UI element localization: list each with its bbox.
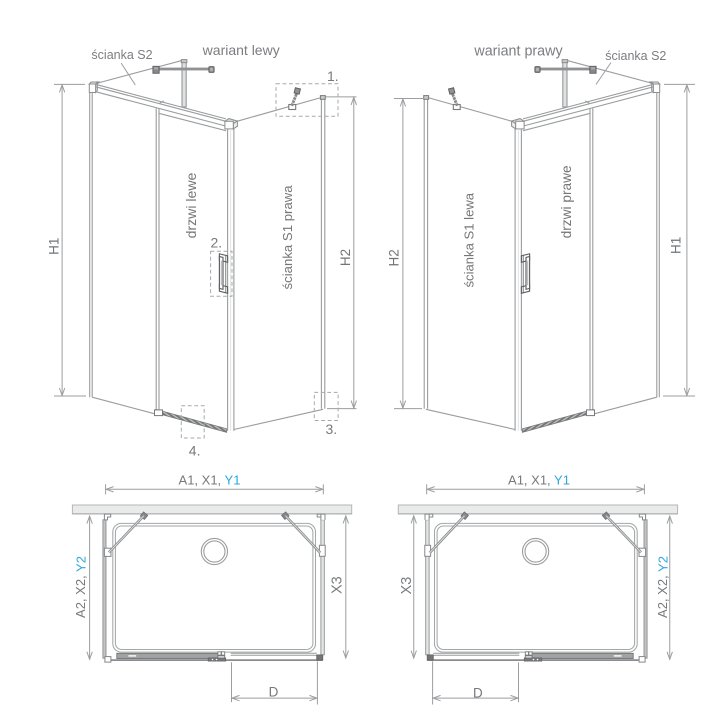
svg-text:ścianka S2: ścianka S2 — [605, 49, 666, 63]
svg-text:wariant lewy: wariant lewy — [202, 42, 280, 58]
svg-text:A2, X2, Y2: A2, X2, Y2 — [655, 556, 670, 618]
svg-text:H1: H1 — [47, 238, 62, 255]
svg-text:ścianka S1 lewa: ścianka S1 lewa — [461, 192, 476, 287]
svg-text:D: D — [269, 685, 279, 700]
svg-text:drzwi prawe: drzwi prawe — [559, 165, 574, 238]
svg-text:2.: 2. — [211, 235, 223, 251]
svg-text:1.: 1. — [327, 68, 339, 84]
svg-text:A1, X1, Y1: A1, X1, Y1 — [508, 473, 570, 488]
svg-text:drzwi lewe: drzwi lewe — [183, 172, 199, 238]
svg-text:A2, X2, Y2: A2, X2, Y2 — [73, 556, 88, 618]
svg-text:X3: X3 — [399, 577, 415, 595]
svg-text:H2: H2 — [387, 249, 402, 266]
svg-text:3.: 3. — [326, 421, 338, 437]
svg-text:H1: H1 — [669, 237, 684, 254]
svg-text:X3: X3 — [329, 576, 345, 594]
svg-text:4.: 4. — [189, 443, 201, 459]
svg-text:ścianka S1 prawa: ścianka S1 prawa — [280, 185, 295, 290]
svg-text:A1, X1, Y1: A1, X1, Y1 — [179, 473, 241, 488]
svg-text:ścianka S2: ścianka S2 — [91, 48, 152, 62]
svg-text:H2: H2 — [338, 249, 353, 266]
svg-text:wariant prawy: wariant prawy — [473, 43, 563, 59]
svg-text:D: D — [473, 685, 483, 700]
